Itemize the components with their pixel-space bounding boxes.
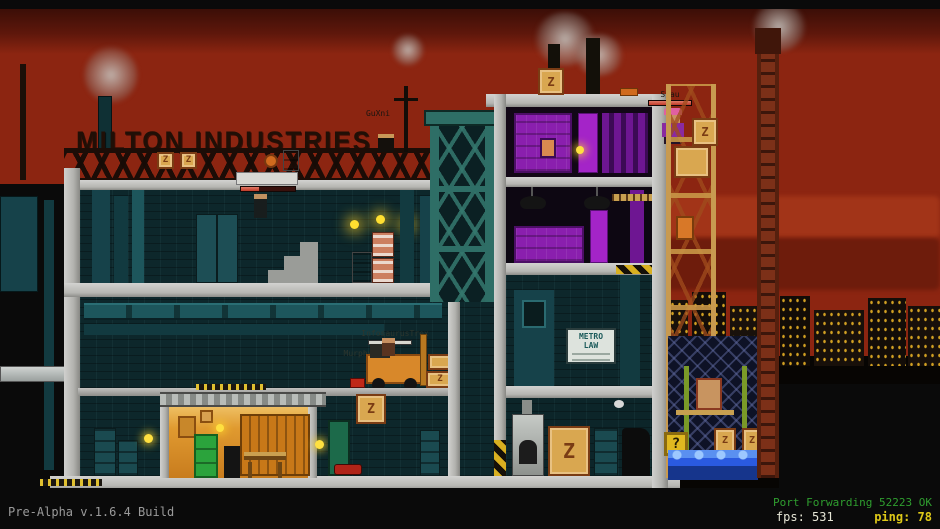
pipe xyxy=(132,190,144,283)
game-viewport[interactable]: MILTON INDUSTRIES Z Z GuXni InfosaurusTr… xyxy=(0,0,940,529)
metro-sign-line2: LAW xyxy=(568,342,614,351)
blank-nameplate xyxy=(236,172,298,185)
sign-fine-print xyxy=(572,353,610,361)
skyline-building xyxy=(908,306,940,366)
purple-machine xyxy=(578,113,598,173)
crate-letter: Z xyxy=(547,76,554,88)
antenna-crossbar xyxy=(394,98,418,101)
stairs xyxy=(300,242,318,283)
purple-machine xyxy=(590,210,608,263)
port-forwarding-status: Port Forwarding 52223 OK xyxy=(773,496,932,509)
garage-post xyxy=(160,407,169,478)
player-character xyxy=(378,134,394,152)
striped-barrel xyxy=(372,258,394,283)
hazard-stripe xyxy=(616,265,652,274)
column xyxy=(448,297,460,476)
barrel xyxy=(94,428,116,476)
garage-lamp xyxy=(216,424,224,432)
fps-value: 531 xyxy=(812,510,834,524)
roof-beam xyxy=(486,94,668,107)
furnace-door xyxy=(519,440,537,464)
pipe xyxy=(84,324,384,335)
riveted-edge xyxy=(40,479,102,486)
small-bird xyxy=(614,400,624,408)
supply-crate: Z xyxy=(538,68,564,95)
black-machine xyxy=(622,428,650,476)
machinery xyxy=(92,190,110,283)
orange-gadget xyxy=(264,154,278,168)
crate-letter: Z xyxy=(563,441,575,461)
wall-lamp xyxy=(376,215,385,224)
wall-lamp xyxy=(315,440,324,449)
supply-crate: Z xyxy=(548,426,590,476)
orange-crate xyxy=(676,216,694,240)
pipe xyxy=(400,190,414,283)
spark xyxy=(576,146,584,154)
gate-tower-cap xyxy=(424,110,502,126)
column xyxy=(494,94,506,476)
crate-letter: Z xyxy=(722,436,728,446)
top-letterbox xyxy=(0,0,940,9)
riveted-edge xyxy=(196,384,266,390)
player-health-bar xyxy=(240,186,296,192)
scaffold-plank xyxy=(676,410,734,415)
desk-leg xyxy=(248,462,252,478)
hazard-stripe xyxy=(494,440,506,476)
lockers xyxy=(196,214,238,283)
crate-letter: Z xyxy=(163,156,168,165)
metro-law-sign: METRO LAW xyxy=(566,328,616,364)
desk xyxy=(244,452,286,460)
desk-leg xyxy=(278,462,282,478)
crate-letter: Z xyxy=(186,156,191,165)
stairs xyxy=(284,256,302,283)
skyline-building xyxy=(868,298,906,366)
build-version-label: Pre-Alpha v.1.6.4 Build xyxy=(8,505,174,519)
antenna-mast xyxy=(404,86,408,152)
crate-letter: Z xyxy=(749,436,755,446)
machinery xyxy=(0,196,38,292)
floor-beam xyxy=(506,386,668,398)
barrel xyxy=(594,428,618,476)
pipe xyxy=(84,303,442,320)
ladder-bridge xyxy=(612,194,652,201)
water xyxy=(668,450,758,480)
cargo-crate xyxy=(696,378,722,410)
filing-cabinet xyxy=(194,434,218,478)
striped-barrel xyxy=(372,232,394,257)
metal-barrel xyxy=(352,252,372,283)
stairs xyxy=(268,270,286,283)
barrel xyxy=(420,430,440,476)
perf-readout: fps: 531 ping: 78 xyxy=(776,510,932,524)
purple-pipes xyxy=(602,113,648,173)
gate-tower xyxy=(430,124,494,302)
crate-letter: Z xyxy=(701,126,708,138)
barrel xyxy=(118,440,138,476)
map-edge xyxy=(779,384,940,488)
player-character xyxy=(254,194,267,218)
metal-barrel xyxy=(283,150,299,171)
ladder-chimney-top xyxy=(755,28,781,54)
gun-pickup xyxy=(620,88,638,96)
brick-ladder-column xyxy=(757,52,779,478)
skyline-building xyxy=(780,296,810,366)
supply-crate: Z xyxy=(356,394,386,424)
chimney xyxy=(586,38,600,98)
wall-frame xyxy=(200,410,213,423)
office-chair xyxy=(224,446,240,478)
column xyxy=(64,168,80,490)
player-nametag: GuXni xyxy=(340,109,416,118)
window-figure xyxy=(540,138,556,158)
coin-pickup xyxy=(144,434,153,443)
smoke-plume xyxy=(392,34,424,66)
supply-crate: Z xyxy=(157,152,174,169)
hanging-lamp xyxy=(584,196,610,209)
gate-tower-bar xyxy=(430,246,494,252)
supply-crate: Z xyxy=(180,152,197,169)
wall-lamp xyxy=(350,220,359,229)
toolbox xyxy=(350,378,365,388)
purple-machine xyxy=(514,226,584,263)
fps-label: fps: xyxy=(776,510,805,524)
window xyxy=(522,300,546,328)
fallen-body xyxy=(334,464,362,475)
pipe xyxy=(44,200,54,470)
pipe xyxy=(114,196,128,283)
skyline-building xyxy=(814,310,864,366)
garage-roof xyxy=(160,392,326,407)
pole xyxy=(20,64,26,180)
crate-letter: Z xyxy=(437,375,442,384)
hanging-lamp xyxy=(520,196,546,209)
supply-crate: Z xyxy=(692,118,718,146)
supply-crate xyxy=(674,146,710,178)
ping-value: 78 xyxy=(918,510,932,524)
crate-letter: Z xyxy=(367,403,375,416)
floor-beam xyxy=(506,177,652,187)
ping-label: ping: xyxy=(874,510,910,524)
driver-character xyxy=(382,338,395,356)
pipe xyxy=(620,275,640,386)
gate-tower-bar xyxy=(430,186,494,192)
